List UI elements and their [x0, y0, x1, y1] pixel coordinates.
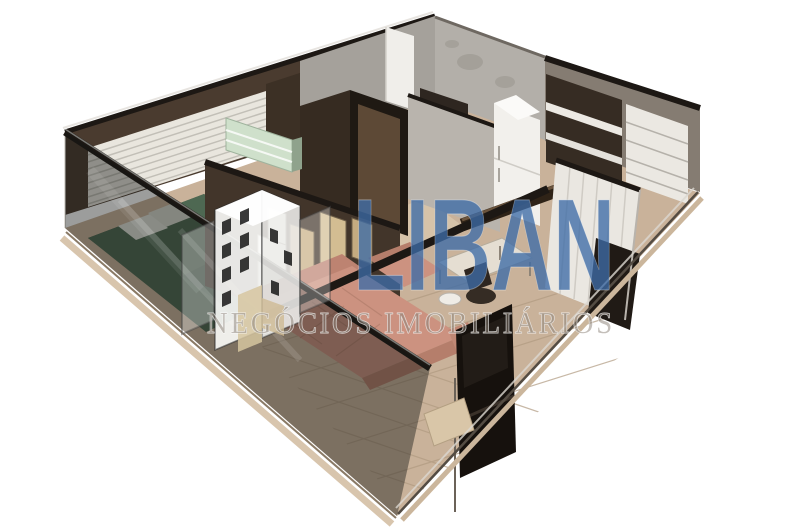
watermark-brand-text: LIBAN — [353, 171, 615, 318]
logo-outline-prism — [300, 207, 330, 313]
watermark: LIBAN NEGÓCIOS IMOBILIÁRIOS — [182, 171, 615, 352]
cabinet-side — [292, 137, 302, 172]
watermark-tagline-text: NEGÓCIOS IMOBILIÁRIOS — [207, 305, 615, 340]
marble-vein — [495, 76, 515, 88]
floor-plan-svg: LIBAN NEGÓCIOS IMOBILIÁRIOS — [0, 0, 800, 528]
marble-vein — [445, 40, 459, 48]
apartment-3d-floor-plan-image: LIBAN NEGÓCIOS IMOBILIÁRIOS — [0, 0, 800, 528]
marble-vein — [457, 54, 483, 70]
